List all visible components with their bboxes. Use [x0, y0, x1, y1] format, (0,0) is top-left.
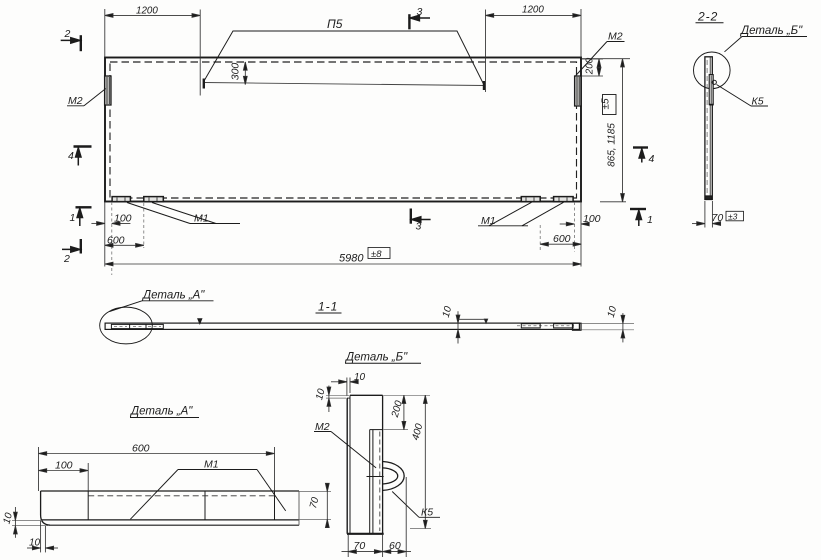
svg-text:2: 2 — [64, 28, 71, 40]
svg-text:1: 1 — [647, 214, 653, 226]
svg-text:1-1: 1-1 — [318, 300, 338, 314]
svg-text:600: 600 — [132, 443, 150, 455]
svg-text:3: 3 — [416, 221, 422, 233]
svg-text:1: 1 — [70, 212, 76, 224]
svg-text:±3: ±3 — [728, 211, 738, 221]
svg-text:400: 400 — [410, 422, 425, 441]
svg-text:100: 100 — [114, 213, 132, 225]
svg-text:±5: ±5 — [601, 98, 612, 109]
svg-text:2-2: 2-2 — [697, 10, 718, 24]
svg-text:4: 4 — [649, 153, 655, 165]
svg-text:Деталь „А": Деталь „А" — [141, 290, 205, 302]
svg-text:10: 10 — [354, 372, 366, 383]
svg-text:10: 10 — [29, 538, 41, 549]
svg-text:70: 70 — [308, 496, 322, 510]
svg-text:300: 300 — [230, 63, 242, 81]
svg-text:К5: К5 — [421, 507, 433, 519]
svg-text:П5: П5 — [327, 17, 343, 31]
svg-text:600: 600 — [107, 234, 125, 246]
svg-text:600: 600 — [553, 233, 571, 245]
svg-text:10: 10 — [1, 511, 15, 525]
svg-text:865, 1185: 865, 1185 — [607, 123, 618, 167]
svg-text:М2: М2 — [68, 95, 83, 107]
svg-text:М2: М2 — [608, 31, 623, 43]
svg-text:М1: М1 — [204, 459, 219, 471]
svg-text:1200: 1200 — [522, 5, 544, 16]
svg-text:10: 10 — [606, 305, 620, 319]
svg-text:70: 70 — [354, 540, 366, 552]
svg-text:10: 10 — [441, 305, 455, 319]
svg-text:М1: М1 — [481, 215, 496, 227]
svg-text:70: 70 — [712, 212, 724, 224]
svg-text:60: 60 — [389, 540, 401, 552]
svg-text:2: 2 — [63, 253, 70, 265]
svg-text:100: 100 — [55, 460, 73, 472]
svg-text:10: 10 — [314, 387, 328, 401]
svg-text:Деталь „Б": Деталь „Б" — [739, 25, 803, 37]
svg-text:3: 3 — [417, 6, 423, 18]
svg-text:1200: 1200 — [136, 6, 158, 17]
svg-text:Деталь „А": Деталь „А" — [129, 406, 193, 418]
svg-text:4: 4 — [68, 150, 74, 162]
svg-text:М2: М2 — [315, 421, 330, 433]
svg-text:±8: ±8 — [371, 249, 382, 260]
svg-text:200: 200 — [390, 399, 405, 419]
svg-text:5980: 5980 — [339, 253, 364, 265]
svg-text:Деталь „Б": Деталь „Б" — [344, 352, 408, 364]
svg-text:М1: М1 — [194, 213, 209, 225]
svg-text:100: 100 — [583, 213, 601, 225]
